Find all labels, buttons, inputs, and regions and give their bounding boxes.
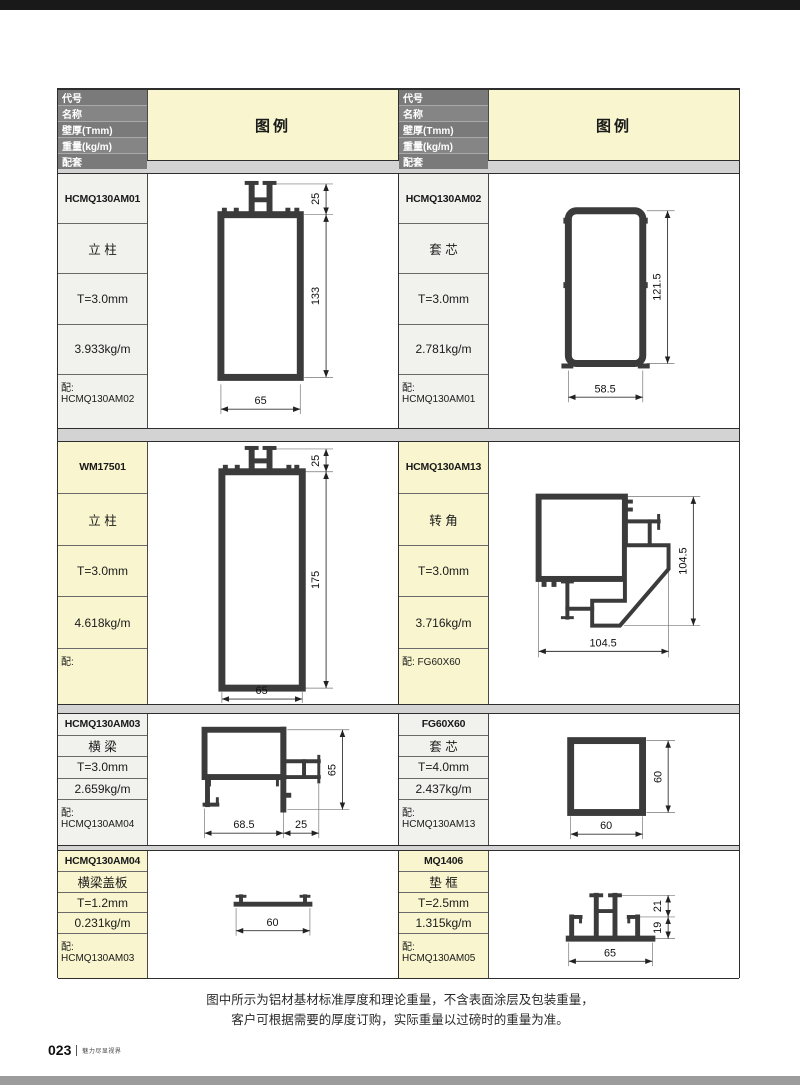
- profile-card-fg60x60: FG60X60 套 芯 T=4.0mm 2.437kg/m 配: HCMQ130…: [399, 714, 739, 845]
- profile-diagram: 60: [148, 851, 398, 978]
- label-name: 名称: [58, 106, 147, 122]
- header-field-labels: 代号 名称 壁厚(Tmm) 重量(kg/m) 配套: [399, 90, 489, 160]
- profile-thickness: T=1.2mm: [58, 893, 147, 914]
- profile-match: 配: HCMQ130AM03: [58, 934, 147, 978]
- profile-name: 垫 框: [399, 872, 488, 893]
- profile-match: 配: HCMQ130AM05: [399, 934, 488, 978]
- divider: [76, 1045, 77, 1056]
- profile-diagram: 25 133 65: [148, 174, 398, 428]
- profile-card-wm17501: WM17501 立 柱 T=3.0mm 4.618kg/m 配:: [58, 442, 399, 704]
- dimension-label: 58.5: [594, 383, 615, 395]
- profile-thickness: T=3.0mm: [58, 757, 147, 779]
- profile-thickness: T=3.0mm: [58, 274, 147, 324]
- profile-diagram: 60 60: [489, 714, 739, 845]
- footer-note-line1: 图中所示为铝材基材标准厚度和理论重量，不含表面涂层及包装重量，: [0, 990, 800, 1010]
- header-right-half: 代号 名称 壁厚(Tmm) 重量(kg/m) 配套 图例: [399, 90, 739, 160]
- profile-name: 套 芯: [399, 224, 488, 274]
- profile-code: HCMQ130AM02: [399, 174, 488, 224]
- legend-header: 图例: [489, 90, 739, 160]
- profile-weight: 3.933kg/m: [58, 325, 147, 375]
- profile-table: 代号 名称 壁厚(Tmm) 重量(kg/m) 配套 图例 代号 名称 壁厚(Tm…: [57, 88, 740, 978]
- profile-card-hcmq130am13: HCMQ130AM13 转 角 T=3.0mm 3.716kg/m 配: FG6…: [399, 442, 739, 704]
- dimension-label: 19: [652, 922, 664, 934]
- profile-match: 配: HCMQ130AM01: [399, 375, 488, 428]
- profile-card-hcmq130am03: HCMQ130AM03 横 梁 T=3.0mm 2.659kg/m 配: HCM…: [58, 714, 399, 845]
- profile-diagram: 121.5 58.5: [489, 174, 739, 428]
- profile-weight: 2.659kg/m: [58, 779, 147, 801]
- table-row: HCMQ130AM04 横梁盖板 T=1.2mm 0.231kg/m 配: HC…: [58, 850, 739, 979]
- bottom-bar: [0, 1076, 800, 1085]
- dimension-label: 121.5: [652, 273, 664, 300]
- profile-code: HCMQ130AM03: [58, 714, 147, 736]
- profile-card-hcmq130am01: HCMQ130AM01 立 柱 T=3.0mm 3.933kg/m 配: HCM…: [58, 174, 399, 428]
- label-match: 配套: [399, 154, 488, 169]
- footer-note-line2: 客户可根据需要的厚度订购，实际重量以过磅时的重量为准。: [0, 1010, 800, 1030]
- profile-diagram: 104.5 104.5: [489, 442, 739, 704]
- profile-thickness: T=3.0mm: [399, 546, 488, 598]
- profile-thickness: T=3.0mm: [399, 274, 488, 324]
- profile-name: 立 柱: [58, 224, 147, 274]
- page-number: 023: [48, 1042, 71, 1058]
- profile-code: WM17501: [58, 442, 147, 494]
- profile-match: 配: HCMQ130AM02: [58, 375, 147, 428]
- legend-header: 图例: [148, 90, 398, 160]
- profile-weight: 1.315kg/m: [399, 913, 488, 934]
- profile-card-hcmq130am02: HCMQ130AM02 套 芯 T=3.0mm 2.781kg/m 配: HCM…: [399, 174, 739, 428]
- profile-name: 横梁盖板: [58, 872, 147, 893]
- profile-thickness: T=2.5mm: [399, 893, 488, 914]
- page-tagline: 魅力尽显视界: [82, 1046, 121, 1055]
- footer-note: 图中所示为铝材基材标准厚度和理论重量，不含表面涂层及包装重量， 客户可根据需要的…: [0, 990, 800, 1030]
- profile-code: HCMQ130AM04: [58, 851, 147, 872]
- header-field-labels: 代号 名称 壁厚(Tmm) 重量(kg/m) 配套: [58, 90, 148, 160]
- profile-match: 配: FG60X60: [399, 649, 488, 704]
- label-code: 代号: [58, 90, 147, 106]
- table-row: HCMQ130AM03 横 梁 T=3.0mm 2.659kg/m 配: HCM…: [58, 713, 739, 846]
- profile-match: 配:: [58, 649, 147, 704]
- label-weight: 重量(kg/m): [58, 138, 147, 154]
- table-header-row: 代号 名称 壁厚(Tmm) 重量(kg/m) 配套 图例 代号 名称 壁厚(Tm…: [58, 89, 739, 161]
- profile-card-mq1406: MQ1406 垫 框 T=2.5mm 1.315kg/m 配: HCMQ130A…: [399, 851, 739, 978]
- dimension-label: 60: [652, 771, 664, 783]
- dimension-label: 60: [600, 820, 612, 832]
- profile-thickness: T=4.0mm: [399, 757, 488, 779]
- dimension-label: 175: [310, 571, 322, 589]
- profile-thickness: T=3.0mm: [58, 546, 147, 598]
- profile-diagram: 21 19 65: [489, 851, 739, 978]
- profile-code: FG60X60: [399, 714, 488, 736]
- catalog-page: { "colors": { "c-topbar": "#191919", "c-…: [0, 0, 800, 1085]
- page-footer: 023 魅力尽显视界: [48, 1042, 121, 1058]
- profile-match: 配: HCMQ130AM13: [399, 800, 488, 845]
- label-code: 代号: [399, 90, 488, 106]
- dimension-label: 65: [604, 947, 616, 959]
- dimension-label: 65: [327, 764, 339, 776]
- profile-name: 立 柱: [58, 494, 147, 546]
- dimension-label: 65: [255, 395, 267, 407]
- header-left-half: 代号 名称 壁厚(Tmm) 重量(kg/m) 配套 图例: [58, 90, 399, 160]
- profile-weight: 2.437kg/m: [399, 779, 488, 801]
- table-row: WM17501 立 柱 T=3.0mm 4.618kg/m 配:: [58, 441, 739, 705]
- profile-name: 套 芯: [399, 736, 488, 758]
- profile-weight: 3.716kg/m: [399, 597, 488, 649]
- dimension-label: 25: [310, 455, 322, 467]
- profile-weight: 4.618kg/m: [58, 597, 147, 649]
- dimension-label: 104.5: [677, 547, 689, 574]
- label-match: 配套: [58, 154, 147, 169]
- profile-code: HCMQ130AM13: [399, 442, 488, 494]
- profile-name: 横 梁: [58, 736, 147, 758]
- profile-match: 配: HCMQ130AM04: [58, 800, 147, 845]
- dimension-label: 25: [295, 819, 307, 831]
- top-bar: [0, 0, 800, 10]
- dimension-label: 68.5: [233, 819, 254, 831]
- dimension-label: 21: [652, 900, 664, 912]
- profile-diagram: 65 68.5 25: [148, 714, 398, 845]
- profile-code: MQ1406: [399, 851, 488, 872]
- dimension-label: 65: [256, 685, 268, 697]
- dimension-label: 60: [266, 917, 278, 929]
- dimension-label: 104.5: [589, 637, 616, 649]
- profile-code: HCMQ130AM01: [58, 174, 147, 224]
- dimension-label: 133: [310, 287, 322, 305]
- profile-name: 转 角: [399, 494, 488, 546]
- profile-weight: 0.231kg/m: [58, 913, 147, 934]
- label-thickness: 壁厚(Tmm): [399, 122, 488, 138]
- label-thickness: 壁厚(Tmm): [58, 122, 147, 138]
- label-weight: 重量(kg/m): [399, 138, 488, 154]
- profile-diagram: 25 175 65: [148, 442, 398, 704]
- table-row: HCMQ130AM01 立 柱 T=3.0mm 3.933kg/m 配: HCM…: [58, 173, 739, 429]
- dimension-label: 25: [310, 193, 322, 205]
- label-name: 名称: [399, 106, 488, 122]
- profile-card-hcmq130am04: HCMQ130AM04 横梁盖板 T=1.2mm 0.231kg/m 配: HC…: [58, 851, 399, 978]
- profile-weight: 2.781kg/m: [399, 325, 488, 375]
